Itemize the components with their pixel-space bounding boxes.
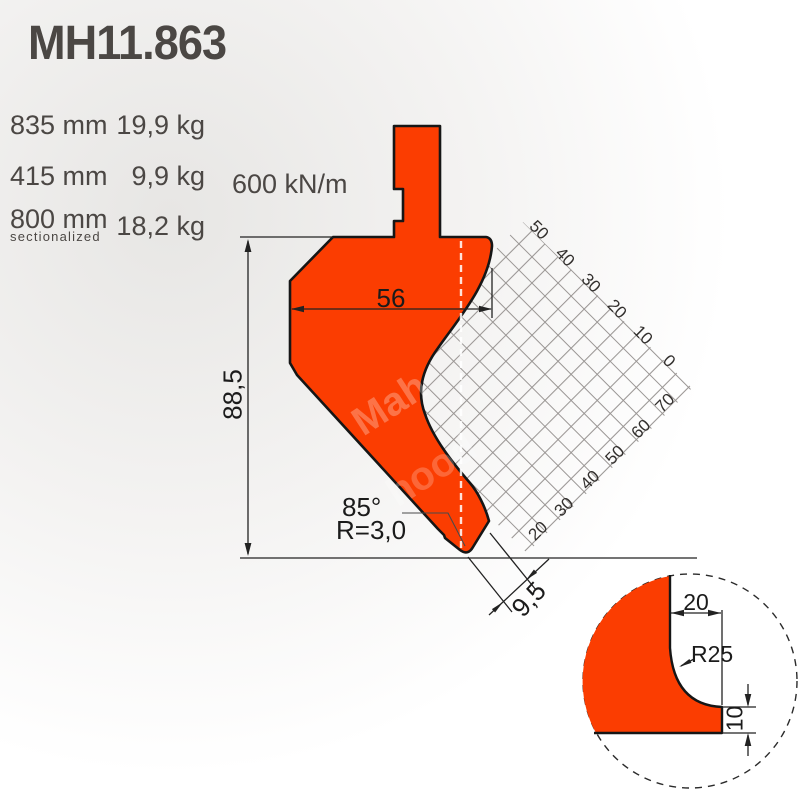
weight-value-2: 9,9 kg <box>90 161 205 192</box>
tool-model-title: MH11.863 <box>28 16 226 71</box>
weight-value-1: 19,9 kg <box>90 110 205 141</box>
sectionalized-note: sectionalized <box>10 229 101 244</box>
detail-dim-height: 10 <box>722 696 749 742</box>
dim-tip-radius: R=3,0 <box>336 515 406 546</box>
tool-datasheet: MH11.863 835 mm 19,9 kg 415 mm 9,9 kg 80… <box>0 0 800 800</box>
force-rating: 600 kN/m <box>232 169 348 200</box>
dim-body-width: 56 <box>356 283 426 314</box>
dim-height: 88,5 <box>218 355 249 435</box>
detail-dim-width: 20 <box>674 589 718 616</box>
detail-dim-radius: R25 <box>691 641 733 668</box>
weight-value-3: 18,2 kg <box>90 211 205 242</box>
